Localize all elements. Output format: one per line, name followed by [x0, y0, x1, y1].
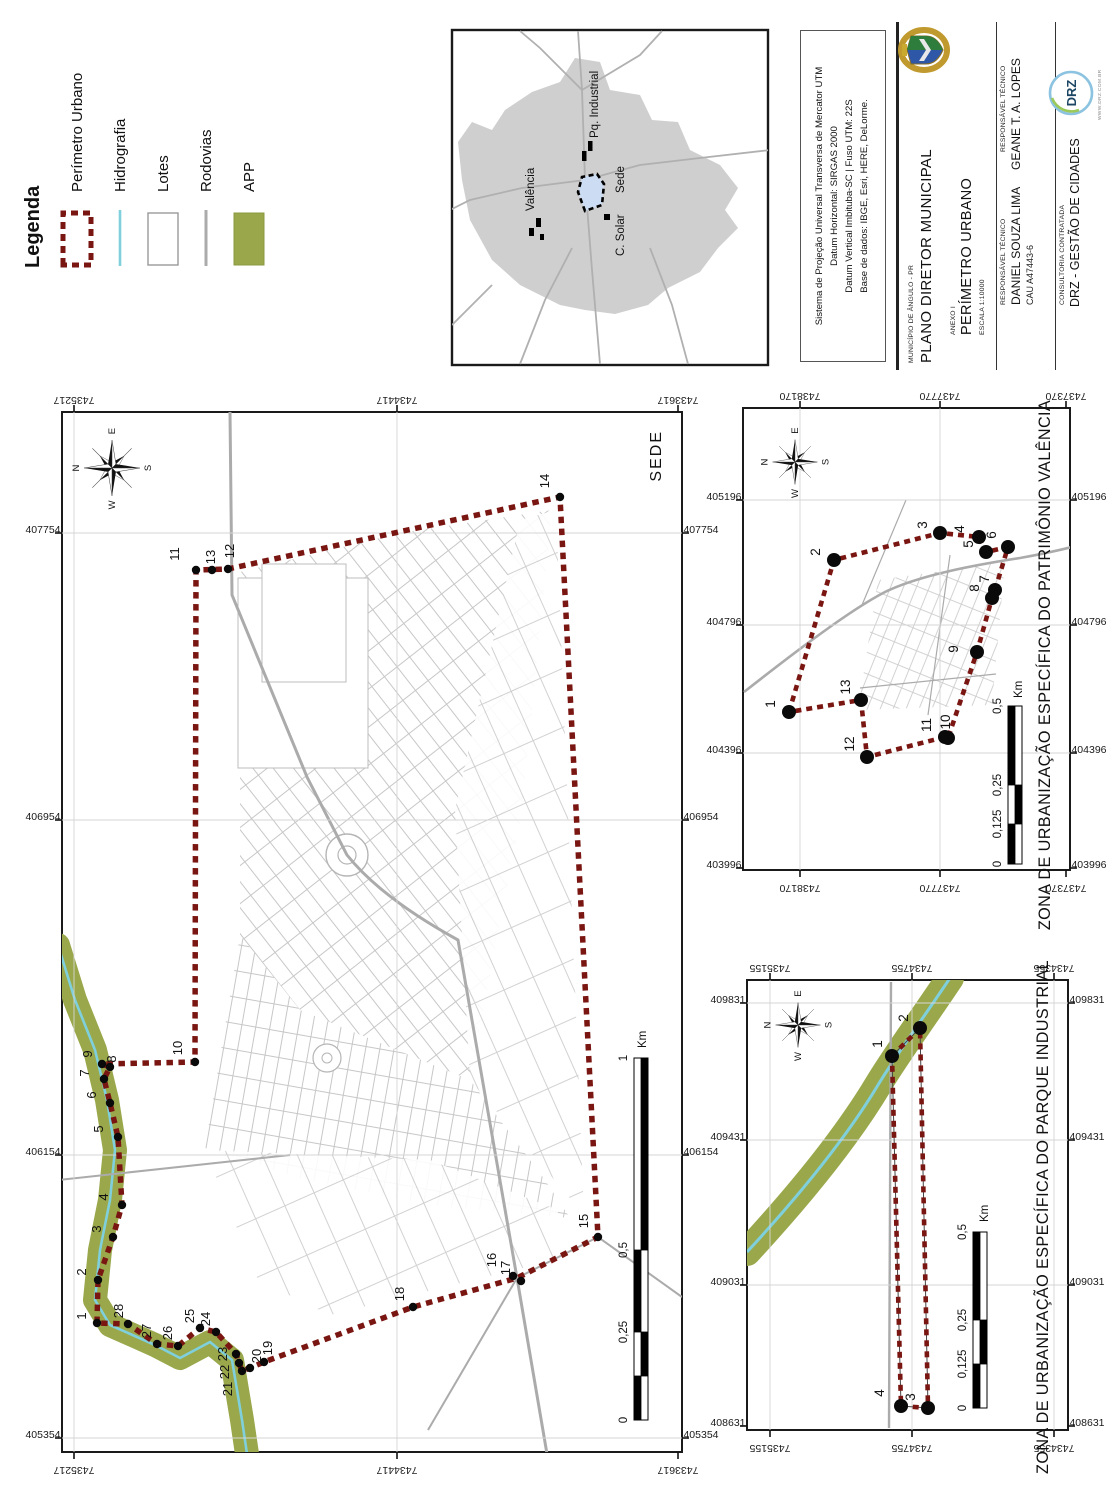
compass-letter: N — [760, 458, 771, 465]
vertex-label: 1 — [74, 1312, 89, 1319]
title-block-rule — [996, 22, 997, 370]
projection-line: Sistema de Projeção Universal Transversa… — [813, 31, 828, 361]
scalebar — [973, 1232, 987, 1408]
roads-symbol-icon — [188, 206, 224, 270]
vertex-dot — [894, 1399, 908, 1413]
legend-item-rodovias: Rodovias — [188, 10, 224, 270]
grid-label-easting: 406154 — [683, 1146, 718, 1158]
projection-line: Datum Vertical Imbituba-SC | Fuso UTM: 2… — [843, 31, 858, 361]
compass-letter: W — [790, 489, 801, 498]
grid-label-easting: 406954 — [25, 811, 60, 823]
grid-label-easting: 408631 — [1069, 1417, 1104, 1429]
panel-title: SEDE — [648, 430, 665, 482]
grid-label-easting: 406954 — [683, 811, 718, 823]
vertex-label: 18 — [392, 1287, 407, 1301]
title-block-top-rule — [896, 22, 899, 370]
vertex-label: 3 — [89, 1225, 104, 1232]
compass-letter: E — [790, 427, 801, 433]
vertex-label: 14 — [537, 474, 552, 488]
grid-label-easting: 409031 — [1069, 1276, 1104, 1288]
vertex-label: 8 — [967, 584, 982, 592]
vertex-label: 21 — [220, 1382, 235, 1396]
vertex-dot — [114, 1133, 122, 1141]
vertex-label: 13 — [203, 550, 218, 564]
vertex-label: 17 — [498, 1261, 513, 1275]
vertex-dot — [174, 1342, 182, 1350]
grid-label-northing: 7434755 — [891, 1442, 932, 1454]
vertex-dot — [238, 1367, 246, 1375]
vertex-label: 23 — [215, 1347, 230, 1361]
compass-letter: W — [793, 1052, 804, 1061]
hydrography-symbol-icon — [102, 206, 138, 270]
drz-url: WWW.DRZ.COM.BR — [1098, 69, 1103, 120]
legend-item-perimetro: Perímetro Urbano — [59, 10, 95, 270]
vertex-dot — [118, 1201, 126, 1209]
grid-label-northing: 7434755 — [891, 962, 932, 974]
legend: Legenda Perímetro Urbano Hidrografia Lot… — [22, 10, 274, 270]
vertex-label: 28 — [111, 1304, 126, 1318]
vertex-label: 5 — [961, 540, 976, 548]
vertex-dot — [208, 566, 216, 574]
vertex-label: 11 — [167, 547, 182, 561]
vertex-label: 6 — [84, 1091, 99, 1098]
lots-symbol-icon — [145, 206, 181, 270]
overview-label: Sede — [615, 166, 627, 193]
resp2-name: GEANE T. A. LOPES — [1009, 58, 1023, 170]
grid-label-easting: 405354 — [683, 1429, 718, 1441]
vertex-dot — [556, 493, 564, 501]
vertex-dot — [235, 1359, 243, 1367]
municipio-label: MUNICÍPIO DE ÂNGULO - PR — [908, 265, 915, 363]
parcel-outline-2 — [262, 564, 346, 682]
vertex-dot — [409, 1303, 417, 1311]
vertex-dot — [191, 1058, 199, 1066]
grid-label-northing: 7437770 — [919, 882, 960, 894]
resp1-label: RESPONSÁVEL TÉCNICO — [1000, 218, 1007, 305]
app-symbol-icon — [231, 206, 267, 270]
scale-label: ESCALA 1:10000 — [979, 279, 986, 335]
panel-valenca: 4039964039964043964043964047964047964051… — [706, 390, 1106, 930]
grid-label-easting: 407754 — [25, 524, 60, 536]
grid-label-northing: 7435155 — [749, 962, 790, 974]
grid-label-easting: 405196 — [1071, 491, 1106, 503]
compass-letter: N — [763, 1021, 774, 1028]
grid-label-easting: 409431 — [1069, 1131, 1104, 1143]
compass-letter: S — [823, 1022, 834, 1028]
scalebar-label: 0,25 — [618, 1321, 630, 1343]
vertex-label: 13 — [838, 679, 853, 694]
grid-label-easting: 404796 — [1071, 616, 1106, 628]
scalebar-unit: Km — [637, 1031, 649, 1048]
grid-label-northing: 7437770 — [919, 390, 960, 402]
municipal-crest-icon — [898, 26, 950, 74]
scalebar — [634, 1058, 648, 1420]
grid-label-easting: 405196 — [706, 491, 741, 503]
grid-label-northing: 7434417 — [376, 394, 417, 406]
grid-label-easting: 405354 — [25, 1429, 60, 1441]
vertex-label: 7 — [77, 1069, 92, 1076]
scalebar-label: 0 — [957, 1405, 969, 1411]
scalebar-unit: Km — [979, 1205, 991, 1222]
legend-title: Legenda — [22, 10, 45, 268]
scalebar-label: 0,5 — [957, 1224, 969, 1240]
vertex-dot — [124, 1320, 132, 1328]
vertex-dot — [517, 1277, 525, 1285]
vertex-label: 16 — [484, 1253, 499, 1267]
vertex-dot — [94, 1276, 102, 1284]
projection-line: Base de dados: IBGE, Esri, HERE, DeLorme… — [858, 31, 873, 361]
grid-label-easting: 409831 — [1069, 994, 1104, 1006]
legend-item-lotes: Lotes — [145, 10, 181, 270]
projection-info-box: Sistema de Projeção Universal Transversa… — [800, 30, 886, 362]
vertex-label: 4 — [96, 1193, 111, 1200]
grid-label-northing: 7434417 — [376, 1464, 417, 1476]
scalebar-label: 0 — [618, 1417, 630, 1423]
compass-letter: E — [793, 990, 804, 996]
grid-label-easting: 409831 — [710, 994, 745, 1006]
grid-label-easting: 407754 — [683, 524, 718, 536]
grid-label-easting: 409431 — [710, 1131, 745, 1143]
grid-label-easting: 409031 — [710, 1276, 745, 1288]
vertex-label: 20 — [249, 1349, 264, 1363]
annex-label: ANEXO I — [950, 306, 957, 335]
vertex-label: 2 — [808, 548, 823, 556]
scalebar-label: 0 — [992, 861, 1004, 867]
vertex-dot — [885, 1049, 899, 1063]
scanned-map-page: 4053544053544061544061544069544069544077… — [0, 0, 1116, 1510]
vertex-dot — [1001, 540, 1015, 554]
panel-title: ZONA DE URBANIZAÇÃO ESPECÍFICA DO PATRIM… — [1034, 400, 1054, 930]
vertex-label: 3 — [903, 1393, 918, 1401]
vertex-label: 10 — [938, 714, 953, 729]
vertex-label: 25 — [182, 1309, 197, 1323]
overview-label: Valência — [525, 167, 537, 211]
scalebar-label: 0,5 — [992, 698, 1004, 714]
scalebar-label: 0,5 — [618, 1242, 630, 1258]
grid-label-easting: 406154 — [25, 1146, 60, 1158]
resp1-registration: CAU A47443-6 — [1025, 245, 1035, 305]
plan-title: PLANO DIRETOR MUNICIPAL — [918, 149, 935, 363]
grid-label-easting: 404396 — [706, 744, 741, 756]
vertex-label: 1 — [870, 1040, 885, 1048]
projection-line: Datum Horizontal: SIRGAS 2000 — [828, 31, 843, 361]
vertex-dot — [594, 1233, 602, 1241]
grid-label-northing: 7435155 — [749, 1442, 790, 1454]
vertex-label: 5 — [91, 1125, 106, 1132]
vertex-dot — [970, 645, 984, 659]
vertex-label: 11 — [919, 718, 934, 732]
resp1-name: DANIEL SOUZA LIMA — [1009, 187, 1023, 305]
vertex-dot — [192, 566, 200, 574]
vertex-dot — [109, 1233, 117, 1241]
vertex-dot — [93, 1319, 101, 1327]
vertex-label: 3 — [915, 521, 930, 529]
vertex-dot — [224, 565, 232, 573]
vertex-dot — [106, 1063, 114, 1071]
overview-label: C. Solar — [615, 214, 627, 256]
grid-label-easting: 408631 — [710, 1417, 745, 1429]
compass-letter: N — [71, 464, 82, 471]
vertex-dot — [100, 1075, 108, 1083]
vertex-label: 12 — [842, 736, 857, 751]
vertex-dot — [246, 1364, 254, 1372]
map-sheet-landscape: 4053544053544061544061544069544069544077… — [0, 0, 1116, 1510]
vertex-dot — [985, 591, 999, 605]
compass-letter: S — [143, 465, 154, 471]
vertex-label: 12 — [222, 544, 237, 558]
panel-title: ZONA DE URBANIZAÇÃO ESPECÍFICA DO PARQUE… — [1032, 960, 1052, 1474]
panel-industrial: 4086314086314090314090314094314094314098… — [710, 960, 1104, 1474]
vertex-label: 26 — [160, 1326, 175, 1340]
vertex-dot — [921, 1401, 935, 1415]
vertex-dot — [938, 730, 952, 744]
vertex-dot — [933, 526, 947, 540]
grid-label-northing: 7433617 — [657, 1464, 698, 1476]
vertex-dot — [854, 693, 868, 707]
grid-label-easting: 403996 — [1071, 859, 1106, 871]
vertex-dot — [98, 1060, 106, 1068]
vertex-dot — [860, 750, 874, 764]
vertex-label: 8 — [104, 1055, 119, 1062]
grid-label-easting: 404396 — [1071, 744, 1106, 756]
vertex-label: 2 — [896, 1014, 911, 1022]
vertex-dot — [232, 1350, 240, 1358]
svg-text:DRZ: DRZ — [1064, 80, 1079, 107]
vertex-label: 4 — [872, 1389, 887, 1397]
scalebar-label: 0,25 — [992, 774, 1004, 796]
grid-label-easting: 403996 — [706, 859, 741, 871]
grid-label-easting: 404796 — [706, 616, 741, 628]
grid-label-northing: 7435217 — [53, 1464, 94, 1476]
consultancy-name: DRZ - GESTÃO DE CIDADES — [1068, 138, 1082, 307]
vertex-dot — [196, 1324, 204, 1332]
vertex-dot — [782, 705, 796, 719]
vertex-label: 27 — [139, 1324, 154, 1338]
vertex-label: 9 — [946, 645, 961, 653]
vertex-dot — [979, 545, 993, 559]
vertex-dot — [913, 1021, 927, 1035]
vertex-label: 15 — [576, 1214, 591, 1228]
resp2-label: RESPONSÁVEL TÉCNICO — [1000, 65, 1007, 152]
scalebar — [1008, 706, 1022, 864]
grid-label-northing: 7433617 — [657, 394, 698, 406]
vertex-label: 9 — [80, 1050, 95, 1057]
compass-letter: S — [820, 459, 831, 465]
overview-label: Pq. Industrial — [589, 71, 601, 138]
perimeter-symbol-icon — [59, 206, 95, 270]
panel-overview: ValênciaPq. IndustrialSedeC. Solar — [450, 30, 770, 365]
vertex-label: 22 — [217, 1365, 232, 1379]
scalebar-label: 0,125 — [957, 1350, 969, 1379]
panel-sede: 4053544053544061544061544069544069544077… — [25, 394, 718, 1476]
vertex-label: 7 — [977, 575, 992, 583]
legend-item-hidrografia: Hidrografia — [102, 10, 138, 270]
vertex-label: 2 — [74, 1268, 89, 1275]
vertex-label: 6 — [984, 531, 999, 539]
vertex-dot — [106, 1099, 114, 1107]
scalebar-unit: Km — [1013, 681, 1025, 698]
grid-label-northing: 7435217 — [53, 394, 94, 406]
legend-item-app: APP — [231, 10, 267, 270]
compass-letter: E — [107, 428, 118, 434]
compass-letter: W — [107, 500, 118, 509]
consultancy-label: CONSULTORIA CONTRATADA — [1059, 205, 1066, 305]
scalebar-label: 1 — [618, 1055, 630, 1061]
vertex-label: 1 — [763, 700, 778, 708]
vertex-dot — [153, 1340, 161, 1348]
annex-title: PERÍMETRO URBANO — [959, 178, 975, 335]
grid-label-northing: 7438170 — [779, 390, 820, 402]
grid-label-northing: 7438170 — [779, 882, 820, 894]
vertex-dot — [212, 1328, 220, 1336]
vertex-dot — [827, 553, 841, 567]
drz-logo-icon: DRZ — [1046, 68, 1096, 118]
vertex-label: 4 — [952, 525, 967, 533]
vertex-label: 10 — [170, 1041, 185, 1055]
scalebar-label: 0,125 — [992, 810, 1004, 839]
scalebar-label: 0,25 — [957, 1309, 969, 1331]
